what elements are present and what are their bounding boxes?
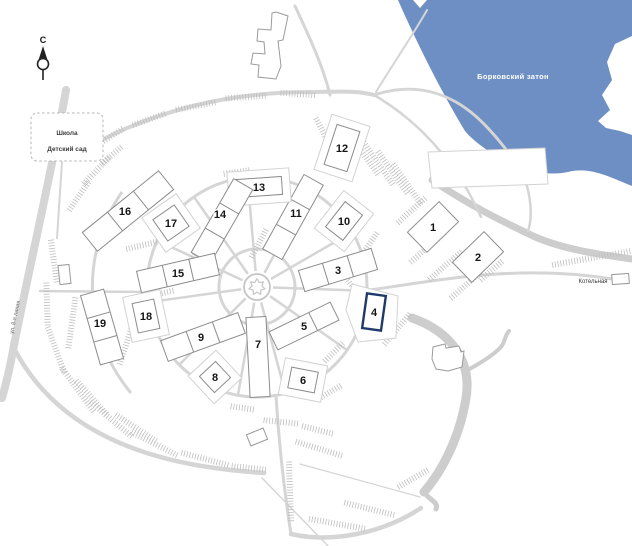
hatch-strip: [360, 139, 395, 186]
road: [412, 318, 467, 492]
building-number: 8: [212, 372, 218, 384]
road: [432, 180, 632, 259]
facility-box-border: [31, 113, 103, 161]
building-number: 2: [475, 252, 481, 264]
hatch-strip: [344, 500, 394, 518]
hatch-strip: [74, 379, 108, 416]
north-arrow-ring: [38, 59, 49, 70]
hatch-strip: [231, 403, 254, 412]
building-number: 18: [140, 311, 152, 323]
hatch-strip: [295, 439, 342, 459]
building-number: 15: [172, 268, 184, 280]
building-12[interactable]: 12: [314, 114, 370, 182]
building-number: 14: [214, 209, 227, 221]
building-number: 3: [335, 265, 341, 277]
hatch-strip: [67, 181, 91, 212]
site-plan: 12345678910111213141516171819 Борковский…: [0, 0, 632, 546]
map-canvas: 12345678910111213141516171819 Борковский…: [0, 0, 632, 546]
building-number: 9: [198, 332, 204, 344]
hatch-strip: [391, 163, 423, 205]
building-shape: [246, 317, 270, 398]
hatch-strip: [376, 150, 410, 195]
hatch-strip: [323, 341, 345, 363]
building-outline: [432, 344, 464, 371]
building-15[interactable]: 15: [137, 253, 220, 292]
building-number: 19: [94, 318, 106, 330]
building-6[interactable]: 6: [278, 358, 327, 403]
hatch-strip: [60, 366, 96, 413]
building-number: 11: [290, 208, 302, 220]
facility-box: Школа Детский сад: [31, 113, 103, 161]
building-1[interactable]: 1: [407, 202, 458, 253]
road: [370, 273, 612, 290]
road: [57, 162, 62, 238]
road: [295, 6, 330, 95]
building-number: 5: [301, 321, 307, 333]
water-label: Борковский затон: [477, 72, 549, 81]
building-19[interactable]: 19: [81, 289, 124, 365]
road: [424, 492, 437, 509]
road: [300, 464, 420, 497]
hatch-strip: [226, 93, 266, 102]
building-number: 16: [119, 206, 131, 218]
building-7[interactable]: 7: [246, 317, 270, 398]
facility-line-kindergarten: Детский сад: [47, 145, 86, 153]
north-arrow-icon: С: [38, 35, 49, 80]
small-building: [58, 264, 71, 284]
hatch-strip: [264, 417, 298, 426]
small-building: [612, 273, 630, 284]
hatch-strip: [65, 297, 78, 348]
building-outline: [251, 12, 288, 79]
hatch-strip: [48, 240, 60, 282]
building-number: 12: [336, 143, 348, 155]
plot-outline: [428, 148, 548, 188]
building-number: 10: [338, 216, 350, 228]
hatch-strip: [309, 516, 365, 532]
facility-line-school: Школа: [56, 130, 78, 137]
hatch-strip: [114, 412, 157, 443]
hatch-strip: [302, 423, 333, 436]
road: [291, 508, 421, 537]
hatch-strip: [45, 326, 67, 373]
building-number: 17: [165, 218, 177, 230]
north-letter: С: [40, 35, 47, 45]
building-number: 4: [371, 307, 378, 319]
road: [376, 10, 427, 92]
boiler-house-label: Котельная: [578, 279, 607, 285]
building-number: 6: [300, 375, 306, 387]
building-4[interactable]: 4: [362, 293, 386, 330]
building-5[interactable]: 5: [269, 302, 339, 350]
map-generated-layers: 12345678910111213141516171819: [2, 0, 632, 546]
hatch-strip: [43, 283, 50, 325]
building-number: 13: [253, 182, 265, 194]
hatch-strip: [100, 145, 123, 166]
small-building: [246, 428, 267, 446]
road: [464, 331, 509, 372]
building-number: 7: [255, 339, 261, 351]
building-9[interactable]: 9: [161, 313, 246, 362]
building-number: 1: [430, 222, 436, 234]
